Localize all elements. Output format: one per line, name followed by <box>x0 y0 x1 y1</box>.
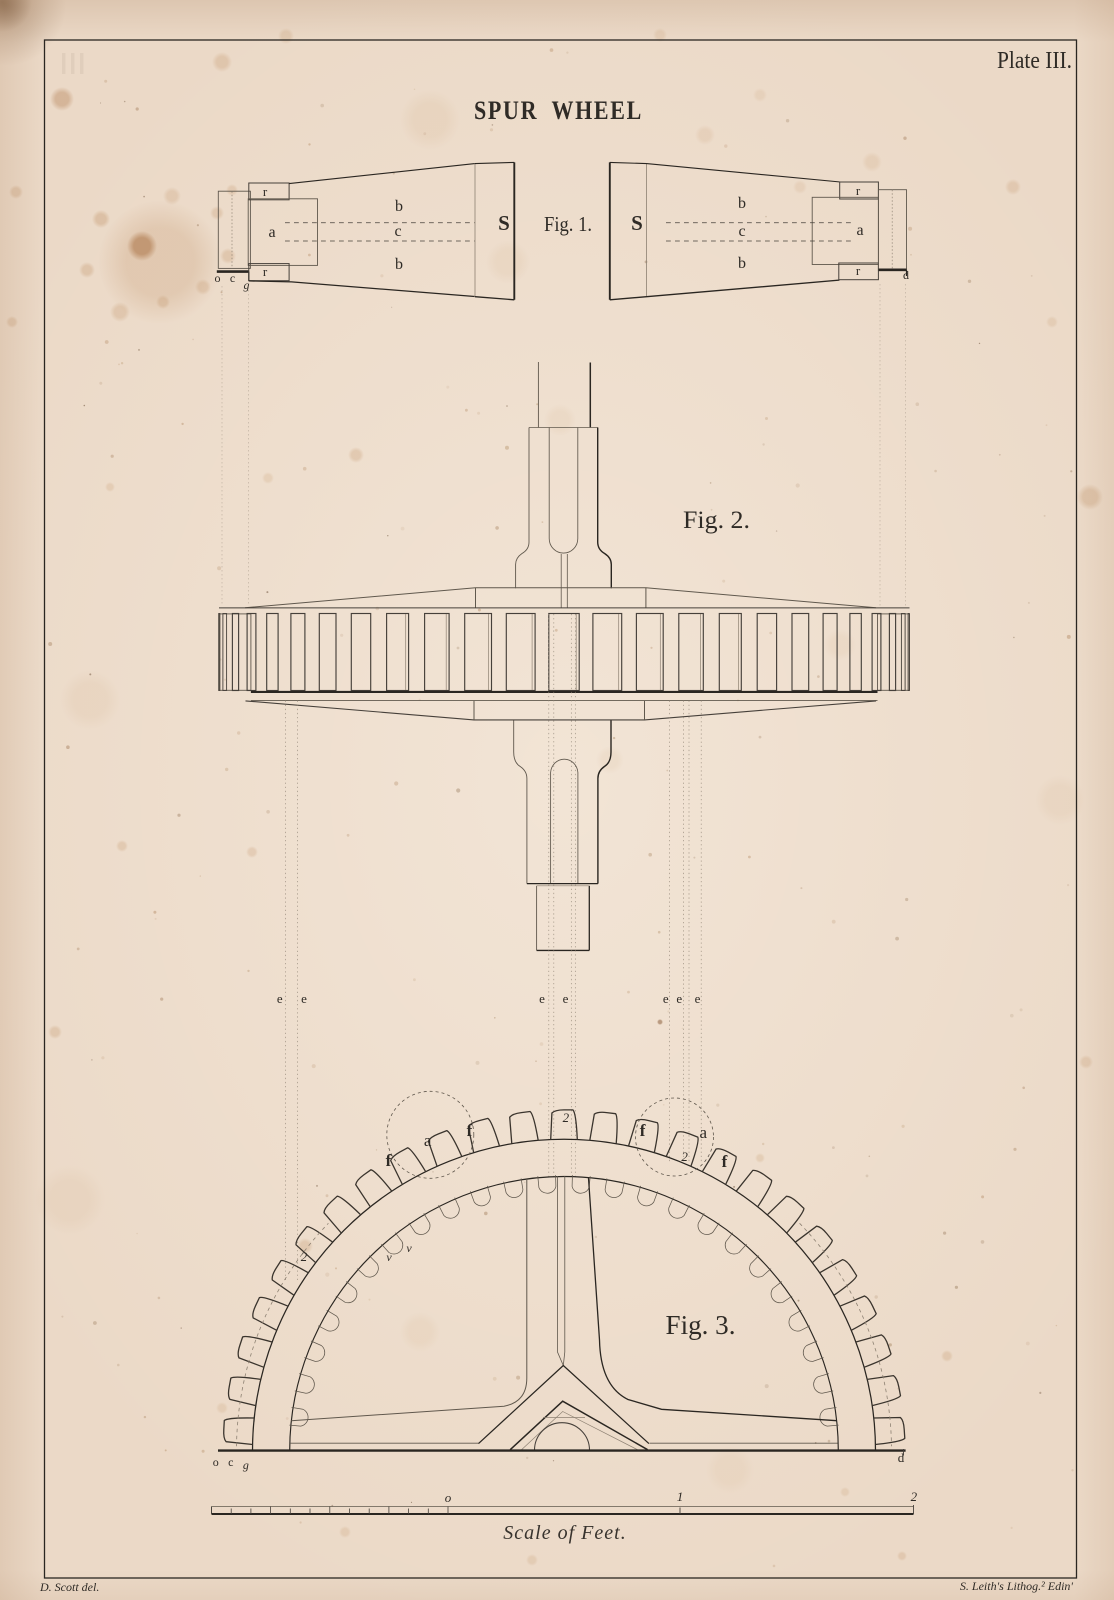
svg-text:S: S <box>498 211 510 235</box>
svg-text:e: e <box>695 991 701 1006</box>
svg-text:f: f <box>722 1152 728 1171</box>
svg-text:c: c <box>230 271 235 285</box>
svg-text:e: e <box>539 991 545 1006</box>
svg-text:a: a <box>424 1131 432 1150</box>
svg-text:1: 1 <box>677 1489 684 1504</box>
svg-text:Fig. 1.: Fig. 1. <box>544 212 592 236</box>
svg-text:e: e <box>676 991 682 1006</box>
svg-text:b: b <box>395 256 403 273</box>
svg-text:b: b <box>738 255 746 272</box>
svg-text:S: S <box>631 211 643 235</box>
svg-text:e: e <box>563 991 569 1006</box>
svg-text:a: a <box>268 224 275 241</box>
svg-text:2: 2 <box>681 1149 688 1164</box>
svg-text:g: g <box>244 278 250 292</box>
svg-text:S. Leith's Lithog.² Edin': S. Leith's Lithog.² Edin' <box>960 1579 1074 1593</box>
svg-text:o: o <box>445 1490 452 1505</box>
svg-text:2: 2 <box>563 1110 570 1125</box>
svg-text:Fig. 3.: Fig. 3. <box>666 1310 736 1340</box>
svg-text:a: a <box>856 222 863 239</box>
svg-text:v: v <box>406 1241 412 1255</box>
svg-text:f: f <box>386 1151 392 1170</box>
svg-text:c: c <box>738 223 745 240</box>
svg-text:r: r <box>263 264 268 279</box>
svg-text:c: c <box>394 223 401 240</box>
svg-text:o: o <box>215 271 221 285</box>
svg-text:2: 2 <box>911 1489 918 1504</box>
svg-text:SPUR WHEEL: SPUR WHEEL <box>474 96 643 125</box>
svg-text:f: f <box>640 1121 646 1140</box>
svg-text:r: r <box>263 184 268 199</box>
svg-text:D. Scott del.: D. Scott del. <box>39 1580 99 1594</box>
svg-text:v: v <box>386 1250 392 1264</box>
svg-text:r: r <box>856 183 861 198</box>
svg-text:f: f <box>467 1121 473 1140</box>
svg-text:Fig. 2.: Fig. 2. <box>683 507 750 534</box>
svg-text:a: a <box>700 1123 708 1142</box>
svg-text:o: o <box>213 1455 219 1469</box>
svg-text:d: d <box>898 1450 905 1465</box>
svg-text:Scale of Feet.: Scale of Feet. <box>503 1522 626 1544</box>
svg-text:c: c <box>228 1455 233 1469</box>
svg-text:d: d <box>903 268 909 282</box>
svg-text:2: 2 <box>301 1249 308 1264</box>
svg-text:e: e <box>277 991 283 1006</box>
svg-text:Plate III.: Plate III. <box>997 48 1072 74</box>
svg-text:r: r <box>856 263 861 278</box>
svg-text:b: b <box>395 198 403 215</box>
svg-text:e: e <box>663 991 669 1006</box>
svg-text:e: e <box>301 991 307 1006</box>
svg-text:g: g <box>243 1458 249 1472</box>
svg-text:b: b <box>738 195 746 212</box>
